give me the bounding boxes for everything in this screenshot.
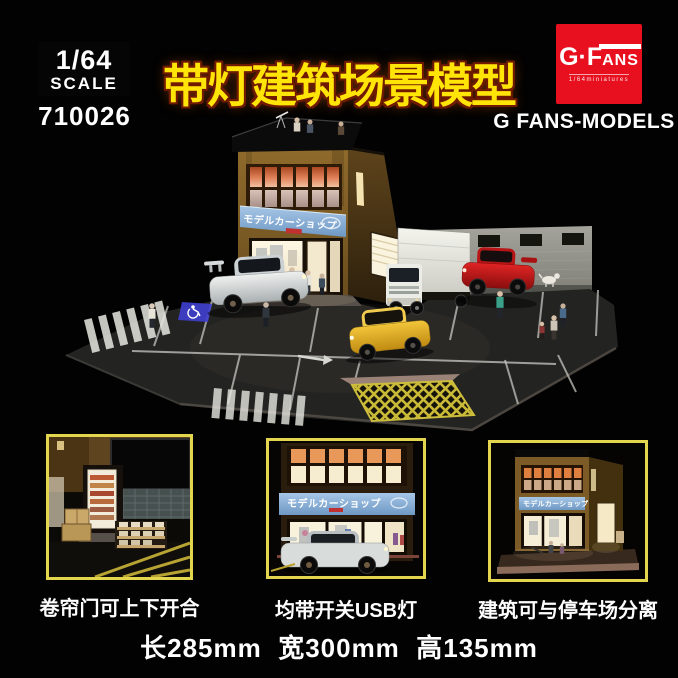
product-poster: 1/64 SCALE 710026 带灯建筑场景模型 G·FANS 1/64mi… xyxy=(0,0,678,678)
cardboard-boxes xyxy=(62,509,91,541)
gfans-logo-bar xyxy=(599,44,641,49)
stock-shelf xyxy=(115,521,167,549)
gfans-logo-text: G·FANS xyxy=(559,45,639,70)
scale-word: SCALE xyxy=(50,75,118,92)
interior-lamp xyxy=(57,441,64,450)
thumb3-sign: モデルカーショップ xyxy=(519,497,589,510)
feature-usb-light: モデルカーショップ xyxy=(266,438,426,579)
thumb-building-photo: モデルカーショップ xyxy=(488,440,648,582)
thumb3-side-door xyxy=(597,503,615,543)
gfans-logo: G·FANS 1/64miniatures xyxy=(556,24,642,104)
feature-caption: 建筑可与停车场分离 xyxy=(478,594,658,623)
feature-caption: 均带开关USB灯 xyxy=(275,594,417,623)
thumb3-sign-text: モデルカーショップ xyxy=(523,499,589,508)
side-cabinet xyxy=(49,477,64,527)
thumb-storefront-photo: モデルカーショップ xyxy=(266,438,426,579)
thumb3-shopfront xyxy=(521,513,585,549)
side-slit-window xyxy=(356,172,364,206)
feature-caption: 卷帘门可上下开合 xyxy=(40,592,200,621)
product-dimensions: 长285mm 宽300mm 高135mm xyxy=(0,628,678,665)
gfans-logo-subtext: 1/64miniatures xyxy=(569,74,629,83)
handicap-marking xyxy=(178,302,212,322)
gfans-logo-suffix: ANS xyxy=(602,52,639,69)
second-floor-windows xyxy=(246,164,342,210)
thumb2-sign: モデルカーショップ xyxy=(279,493,415,515)
thumb3-windows xyxy=(521,465,583,493)
page-title: 带灯建筑场景模型 xyxy=(163,50,515,116)
diorama-photo: モデルカーショップ xyxy=(0,108,678,438)
gfans-logo-prefix: G·F xyxy=(559,43,602,71)
lit-display-fridge xyxy=(88,470,116,528)
feature-separable-building: モデルカーショップ 建筑可与停车场分 xyxy=(488,440,648,582)
thumb-interior-photo xyxy=(46,434,193,580)
rooftop xyxy=(232,112,362,152)
thumb3-building: モデルカーショップ xyxy=(515,449,624,551)
thumb2-window-band xyxy=(287,446,407,486)
feature-roller-door: 卷帘门可上下开合 xyxy=(46,434,193,580)
scale-ratio: 1/64 xyxy=(56,47,113,74)
scale-badge: 1/64 SCALE xyxy=(38,42,130,96)
